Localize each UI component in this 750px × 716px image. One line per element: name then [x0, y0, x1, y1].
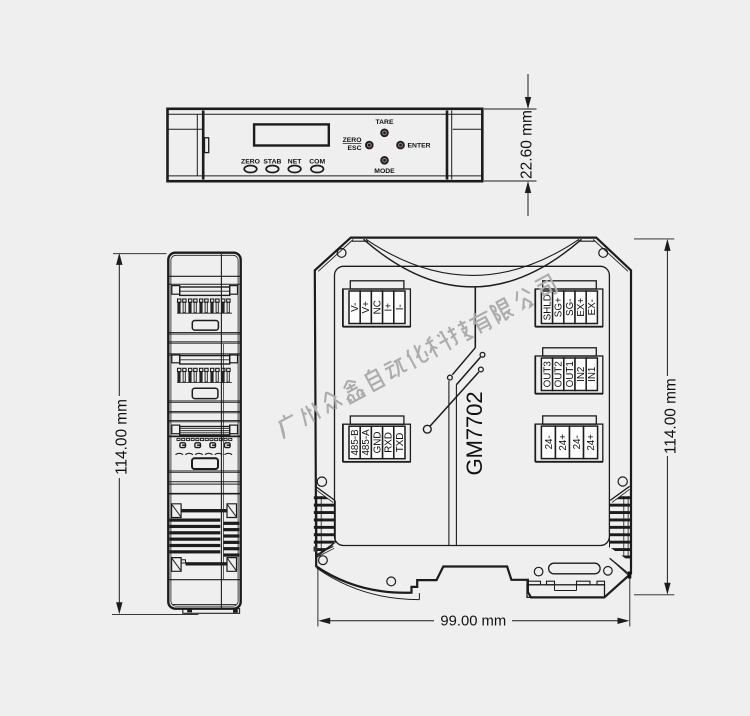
svg-text:114.00 mm: 114.00 mm [114, 399, 131, 475]
svg-text:V+: V+ [361, 301, 372, 314]
svg-text:22.60 mm: 22.60 mm [518, 110, 535, 179]
svg-text:TXD: TXD [395, 433, 406, 453]
svg-text:I+: I+ [384, 303, 395, 312]
svg-text:114.00 mm: 114.00 mm [663, 378, 680, 454]
svg-text:IN2: IN2 [576, 367, 587, 382]
svg-text:ESC: ESC [348, 145, 362, 152]
svg-text:SG+: SG+ [554, 297, 565, 317]
svg-text:ZERO: ZERO [241, 159, 260, 166]
svg-text:SG-: SG- [565, 299, 576, 316]
svg-text:IN1: IN1 [587, 367, 598, 382]
svg-text:NC: NC [372, 300, 383, 314]
svg-text:GM7702: GM7702 [462, 392, 487, 476]
svg-text:RXD: RXD [384, 432, 395, 453]
svg-text:SHLD: SHLD [542, 294, 553, 320]
svg-text:24+: 24+ [558, 434, 569, 451]
svg-text:ENTER: ENTER [408, 143, 431, 150]
svg-text:ZERO: ZERO [343, 137, 362, 144]
svg-text:99.00 mm: 99.00 mm [440, 614, 506, 630]
svg-text:COM: COM [309, 159, 325, 166]
svg-text:NET: NET [288, 159, 302, 166]
svg-text:TARE: TARE [376, 119, 394, 126]
svg-text:485-B: 485-B [350, 429, 361, 456]
svg-text:24-: 24- [544, 435, 555, 449]
svg-text:STAB: STAB [263, 159, 281, 166]
svg-text:24+: 24+ [586, 434, 597, 451]
svg-text:OUT2: OUT2 [554, 361, 565, 387]
svg-text:V-: V- [350, 303, 361, 312]
svg-text:EX-: EX- [587, 299, 598, 315]
svg-text:I-: I- [395, 304, 406, 310]
svg-text:OUT3: OUT3 [542, 361, 553, 388]
svg-text:EX+: EX+ [576, 298, 587, 317]
svg-text:485-A: 485-A [361, 429, 372, 456]
svg-text:24-: 24- [572, 435, 583, 449]
svg-text:OUT1: OUT1 [565, 361, 576, 387]
svg-text:GND: GND [372, 432, 383, 454]
svg-text:MODE: MODE [374, 168, 395, 175]
